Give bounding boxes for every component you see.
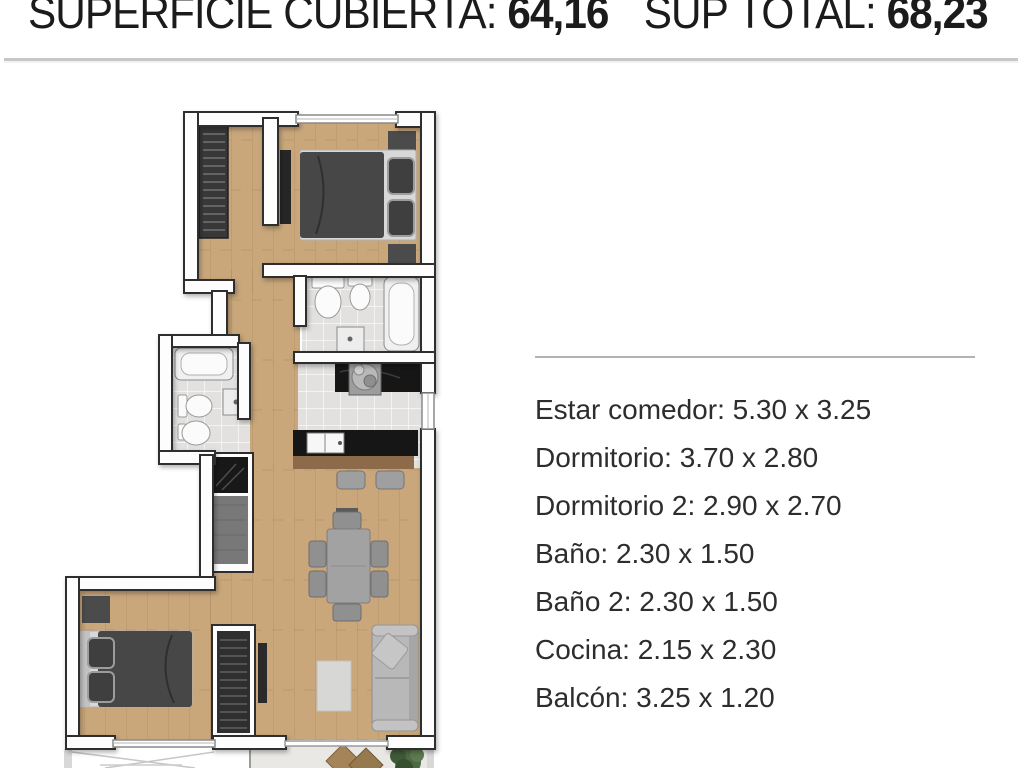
bidet2 bbox=[182, 421, 210, 445]
dining-chair bbox=[371, 541, 388, 567]
listing-page: SUPERFICIE CUBIERTA: 64,16 SUP TOTAL: 68… bbox=[0, 0, 1024, 768]
wall bbox=[200, 455, 213, 589]
dining-chair bbox=[333, 604, 361, 621]
dining-chair bbox=[333, 512, 361, 529]
list-divider bbox=[535, 356, 975, 358]
column bbox=[64, 749, 72, 768]
wall bbox=[66, 577, 215, 590]
nightstand bbox=[388, 244, 416, 266]
rug bbox=[317, 661, 351, 711]
wall bbox=[184, 112, 298, 126]
room-line-bano-2: Baño 2: 2.30 x 1.50 bbox=[535, 578, 980, 626]
appliance-black bbox=[212, 457, 248, 493]
wall bbox=[387, 736, 435, 749]
entry-wardrobe bbox=[199, 126, 228, 238]
pillow bbox=[88, 672, 114, 702]
dining-chair bbox=[371, 571, 388, 597]
pillow bbox=[388, 158, 414, 194]
wall bbox=[421, 112, 435, 393]
room-line-bano: Baño: 2.30 x 1.50 bbox=[535, 530, 980, 578]
tv-unit-living bbox=[258, 643, 267, 703]
bedroom2-closet bbox=[212, 625, 255, 739]
wall-partition bbox=[263, 264, 435, 277]
room-dimension-list: Estar comedor: 5.30 x 3.25 Dormitorio: 3… bbox=[535, 356, 980, 722]
wall-partition bbox=[294, 352, 435, 363]
nightstand2 bbox=[82, 596, 110, 623]
wall bbox=[66, 736, 115, 749]
room-line-dormitorio: Dormitorio: 3.70 x 2.80 bbox=[535, 434, 980, 482]
bar-stool bbox=[376, 471, 404, 489]
wall-partition bbox=[294, 276, 306, 326]
column bbox=[427, 749, 434, 768]
wall bbox=[184, 112, 198, 287]
room-line-cocina: Cocina: 2.15 x 2.30 bbox=[535, 626, 980, 674]
wall bbox=[159, 335, 172, 463]
room-line-balcon: Balcón: 3.25 x 1.20 bbox=[535, 674, 980, 722]
pillow bbox=[88, 638, 114, 668]
wall-partition bbox=[238, 343, 250, 419]
breakfast-bar bbox=[293, 456, 414, 469]
toilet bbox=[315, 286, 341, 318]
wall bbox=[66, 577, 79, 749]
wall-partition bbox=[263, 118, 278, 225]
room-line-dormitorio-2: Dormitorio 2: 2.90 x 2.70 bbox=[535, 482, 980, 530]
toilet2 bbox=[186, 395, 212, 417]
bar-stool bbox=[337, 471, 365, 489]
pillow bbox=[388, 200, 414, 236]
tv-unit bbox=[280, 150, 291, 224]
shaft-floor bbox=[212, 496, 248, 564]
bed-duvet bbox=[300, 152, 384, 238]
dining-chair bbox=[309, 571, 326, 597]
wall bbox=[421, 429, 435, 738]
bidet bbox=[350, 284, 370, 310]
room-line-estar-comedor: Estar comedor: 5.30 x 3.25 bbox=[535, 386, 980, 434]
dining-chair bbox=[309, 541, 326, 567]
balcony-sliding-door bbox=[285, 741, 388, 746]
wall bbox=[213, 736, 286, 749]
